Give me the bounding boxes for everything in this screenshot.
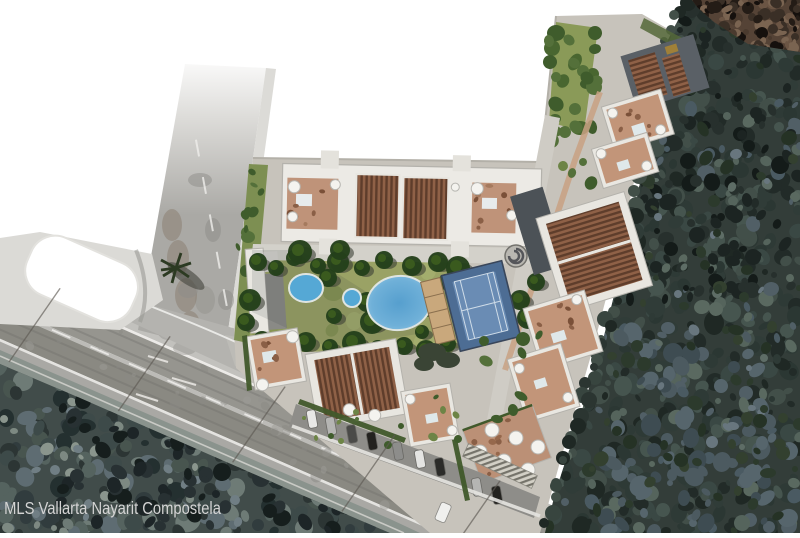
svg-text:MLS Vallarta Nayarit Compostel: MLS Vallarta Nayarit Compostela	[4, 499, 222, 519]
